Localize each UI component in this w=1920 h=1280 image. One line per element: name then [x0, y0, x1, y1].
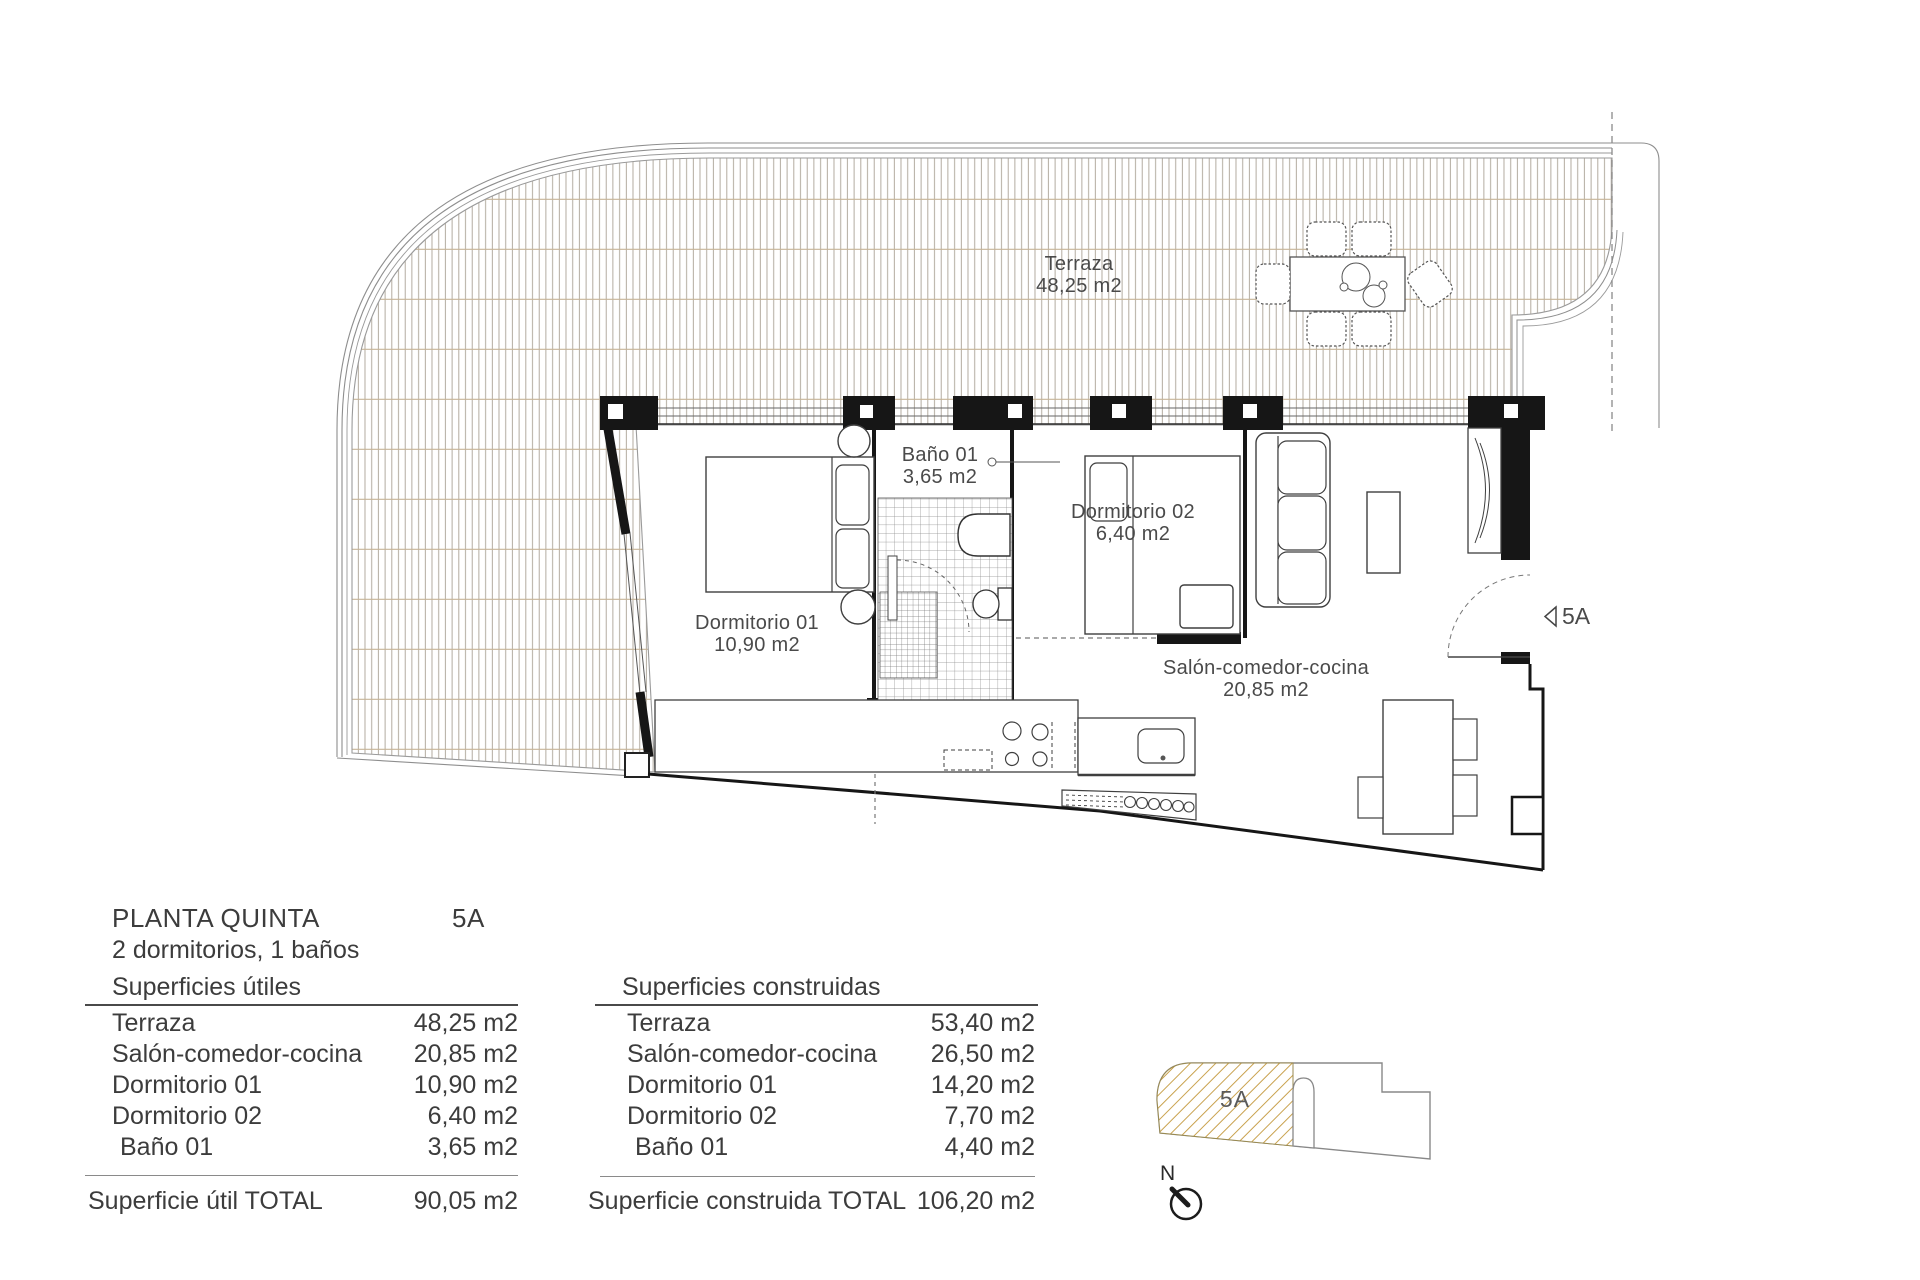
keyplan-stair-core [1293, 1078, 1314, 1148]
sofa-cushion [1278, 441, 1326, 494]
kitchen-counter [655, 700, 1078, 772]
room-name: Baño 01 [865, 444, 1015, 466]
room-name: Dormitorio 01 [682, 612, 832, 634]
row-label: Dormitorio 01 [627, 1070, 777, 1101]
kitchen-fittings [655, 700, 1196, 820]
pillar-core [1112, 404, 1126, 418]
unit-label: 5A [452, 903, 485, 934]
entry-door-swing [1448, 575, 1530, 657]
east-wall-stub [1501, 652, 1530, 664]
toilet-cistern [998, 588, 1012, 620]
table-row: Dormitorio 01 10,90 m2 [85, 1070, 518, 1101]
pillar-core [1008, 404, 1022, 418]
dining-chair [1453, 719, 1477, 760]
row-value: 7,70 m2 [945, 1101, 1035, 1132]
coffee-table [1367, 492, 1400, 573]
keyplan [1157, 1063, 1430, 1219]
pillar-core [1243, 404, 1257, 418]
useful-table-header: Superficies útiles [112, 973, 301, 1002]
label-dormitorio2: Dormitorio 02 6,40 m2 [1058, 501, 1208, 545]
built-total-rule [600, 1176, 1035, 1177]
room-area: 20,85 m2 [1141, 679, 1391, 701]
row-value: 3,65 m2 [428, 1132, 518, 1163]
washbasin [958, 514, 1010, 556]
total-value: 90,05 m2 [414, 1186, 518, 1217]
total-value: 106,20 m2 [917, 1186, 1035, 1217]
floor-plan-sheet: Terraza 48,25 m2 Baño 01 3,65 m2 Dormito… [0, 0, 1920, 1280]
keyplan-unit-label: 5A [1205, 1086, 1265, 1113]
total-row: Superficie construida TOTAL 106,20 m2 [588, 1186, 1035, 1217]
table-row: Terraza 48,25 m2 [85, 1008, 518, 1039]
built-header-rule [595, 1004, 1038, 1006]
pillar-core [860, 405, 873, 418]
pillar-core [1504, 404, 1518, 418]
toilet-bowl [973, 590, 999, 618]
row-label: Salón-comedor-cocina [627, 1039, 877, 1070]
dining-chair [1358, 777, 1383, 818]
room-name: Dormitorio 02 [1058, 501, 1208, 523]
outdoor-chair [1307, 312, 1346, 346]
sheet-subtitle: 2 dormitorios, 1 baños [112, 936, 359, 965]
built-table-header: Superficies construidas [622, 973, 880, 1002]
outdoor-chair [1307, 222, 1346, 256]
room-name: Terraza [1004, 253, 1154, 275]
row-label: Dormitorio 01 [112, 1070, 262, 1101]
outdoor-chair [1352, 312, 1391, 346]
north-label: N [1160, 1162, 1175, 1186]
row-label: Baño 01 [635, 1132, 728, 1163]
row-label: Salón-comedor-cocina [112, 1039, 362, 1070]
useful-total-rule [85, 1175, 518, 1176]
row-label: Terraza [627, 1008, 710, 1039]
row-value: 4,40 m2 [945, 1132, 1035, 1163]
sofa-cushion [1278, 496, 1326, 550]
row-value: 14,20 m2 [931, 1070, 1035, 1101]
bathroom-fixtures [878, 458, 1060, 740]
sheet-title: PLANTA QUINTA [112, 903, 320, 934]
pillow [836, 529, 869, 588]
row-value: 20,85 m2 [414, 1039, 518, 1070]
row-label: Terraza [112, 1008, 195, 1039]
bedroom2-furniture [1085, 456, 1240, 634]
living-furniture [1256, 428, 1501, 834]
label-terraza: Terraza 48,25 m2 [1004, 253, 1154, 297]
row-label: Baño 01 [120, 1132, 213, 1163]
folded-blanket [1180, 585, 1233, 628]
corner-column [625, 753, 649, 777]
row-value: 6,40 m2 [428, 1101, 518, 1132]
total-label: Superficie útil TOTAL [88, 1186, 323, 1217]
table-row: Terraza 53,40 m2 [595, 1008, 1035, 1039]
table-row: Dormitorio 02 6,40 m2 [85, 1101, 518, 1132]
outdoor-chair [1352, 222, 1391, 256]
room-area: 10,90 m2 [682, 634, 832, 656]
row-value: 53,40 m2 [931, 1008, 1035, 1039]
wardrobe [1468, 428, 1501, 553]
table-row: Dormitorio 02 7,70 m2 [595, 1101, 1035, 1132]
row-value: 10,90 m2 [414, 1070, 518, 1101]
entrance-unit-label: 5A [1562, 603, 1590, 630]
room-name: Salón-comedor-cocina [1141, 657, 1391, 679]
plate-small [1379, 281, 1387, 289]
entrance-arrow-icon [1545, 607, 1556, 626]
useful-header-rule [85, 1004, 518, 1006]
nightstand [841, 590, 875, 624]
row-value: 48,25 m2 [414, 1008, 518, 1039]
table-row: Dormitorio 01 14,20 m2 [595, 1070, 1035, 1101]
room-area: 6,40 m2 [1058, 523, 1208, 545]
faucet [1161, 756, 1166, 761]
east-wall-upper [1501, 424, 1530, 560]
label-salon: Salón-comedor-cocina 20,85 m2 [1141, 657, 1391, 701]
row-value: 26,50 m2 [931, 1039, 1035, 1070]
table-row: Salón-comedor-cocina 20,85 m2 [85, 1039, 518, 1070]
table-row: Salón-comedor-cocina 26,50 m2 [595, 1039, 1035, 1070]
pillar-core [608, 404, 623, 419]
label-bano: Baño 01 3,65 m2 [865, 444, 1015, 488]
row-label: Dormitorio 02 [627, 1101, 777, 1132]
room-area: 3,65 m2 [865, 466, 1015, 488]
room-area: 48,25 m2 [1004, 275, 1154, 297]
dining-table [1383, 700, 1453, 834]
plate-small [1340, 283, 1348, 291]
total-label: Superficie construida TOTAL [588, 1186, 906, 1217]
outdoor-chair [1256, 264, 1290, 304]
sofa-cushion [1278, 552, 1326, 604]
dining-chair [1453, 775, 1477, 816]
column-southeast [1512, 797, 1543, 834]
east-wall-lower [1530, 664, 1543, 870]
label-dormitorio1: Dormitorio 01 10,90 m2 [682, 612, 832, 656]
bath-door-leaf [888, 556, 897, 620]
total-row: Superficie útil TOTAL 90,05 m2 [85, 1186, 518, 1217]
table-row: Baño 01 4,40 m2 [595, 1132, 1035, 1163]
row-label: Dormitorio 02 [112, 1101, 262, 1132]
bedroom1-furniture [706, 425, 875, 624]
table-row: Baño 01 3,65 m2 [85, 1132, 518, 1163]
